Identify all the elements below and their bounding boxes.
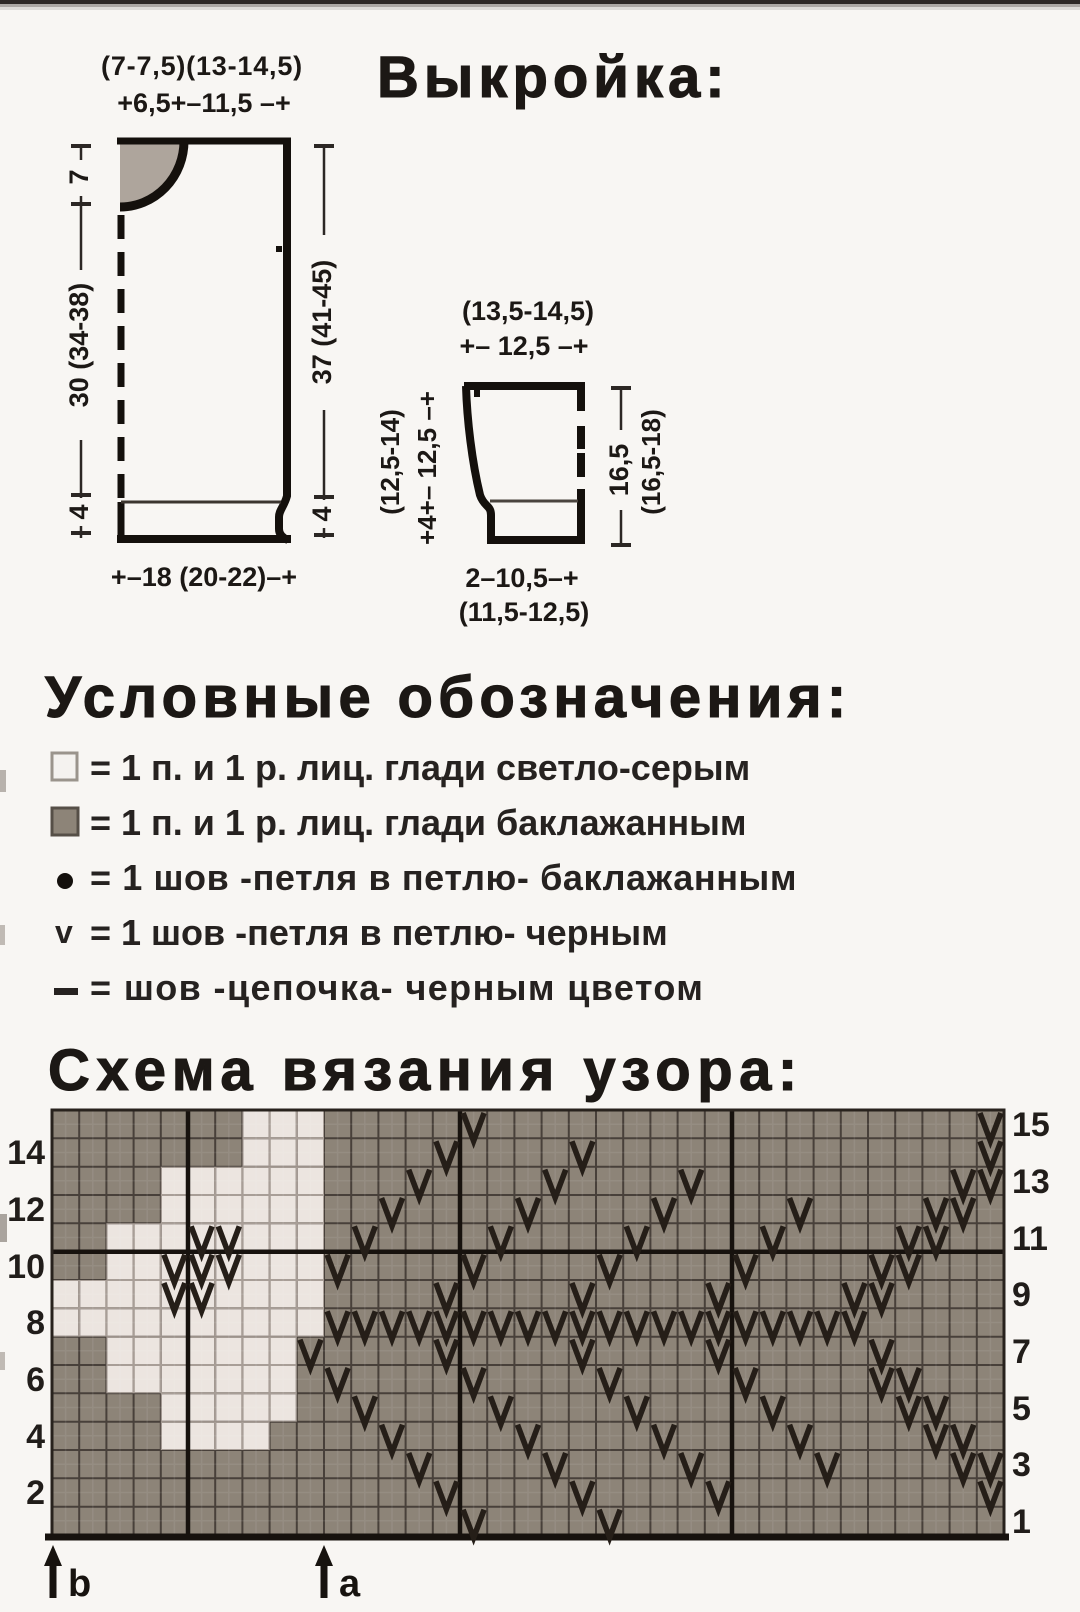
svg-text:= 1 шов -петля в петлю- черным: = 1 шов -петля в петлю- черным (90, 912, 668, 953)
svg-text:5: 5 (1012, 1390, 1031, 1428)
svg-text:+6,5+–11,5 –+: +6,5+–11,5 –+ (117, 88, 290, 118)
svg-text:2–10,5–+: 2–10,5–+ (465, 563, 578, 593)
svg-text:= 1 п. и 1 р. лиц. глади светл: = 1 п. и 1 р. лиц. глади светло-серым (90, 747, 750, 788)
svg-text:37 (41-45): 37 (41-45) (307, 260, 337, 385)
svg-text:7: 7 (64, 169, 94, 184)
svg-text:a: a (339, 1563, 361, 1605)
svg-text:16,5: 16,5 (604, 444, 634, 497)
svg-text:2: 2 (26, 1474, 45, 1512)
svg-text:12: 12 (7, 1191, 45, 1229)
svg-text:4: 4 (307, 506, 337, 521)
svg-text:= 1 п. и 1 р. лиц. глади бакла: = 1 п. и 1 р. лиц. глади баклажанным (90, 802, 747, 843)
svg-text:= шов -цепочка- черным цветом: = шов -цепочка- черным цветом (90, 967, 704, 1008)
svg-text:8: 8 (26, 1304, 45, 1342)
svg-text:+4+– 12,5 –+: +4+– 12,5 –+ (412, 391, 442, 545)
svg-text:10: 10 (7, 1248, 45, 1286)
svg-text:(12,5-14): (12,5-14) (375, 409, 405, 515)
svg-text:6: 6 (26, 1361, 45, 1399)
svg-text:(16,5-18): (16,5-18) (636, 409, 666, 515)
svg-text:(7-7,5)(13-14,5): (7-7,5)(13-14,5) (101, 51, 303, 81)
svg-text:Выкройка:: Выкройка: (377, 45, 730, 110)
svg-text:1: 1 (1012, 1503, 1031, 1541)
svg-text:(13,5-14,5): (13,5-14,5) (462, 296, 594, 326)
svg-text:9: 9 (1012, 1276, 1031, 1314)
svg-text:v: v (55, 914, 73, 950)
svg-text:+– 12,5 –+: +– 12,5 –+ (459, 331, 588, 361)
svg-text:30 (34-38): 30 (34-38) (64, 283, 94, 408)
svg-text:Схема вязания узора:: Схема вязания узора: (48, 1038, 804, 1103)
svg-text:= 1 шов -петля в петлю- баклаж: = 1 шов -петля в петлю- баклажанным (90, 857, 797, 898)
svg-text:3: 3 (1012, 1446, 1031, 1484)
svg-text:+–18 (20-22)–+: +–18 (20-22)–+ (111, 562, 297, 592)
svg-text:(11,5-12,5): (11,5-12,5) (459, 597, 590, 627)
svg-text:15: 15 (1012, 1106, 1050, 1144)
svg-text:4: 4 (64, 504, 94, 519)
svg-text:7: 7 (1012, 1333, 1031, 1371)
svg-text:13: 13 (1012, 1163, 1050, 1201)
svg-text:b: b (68, 1563, 91, 1605)
svg-text:Условные обозначения:: Условные обозначения: (45, 665, 851, 730)
svg-text:14: 14 (7, 1134, 45, 1172)
svg-text:4: 4 (26, 1418, 45, 1456)
svg-text:11: 11 (1012, 1220, 1048, 1258)
